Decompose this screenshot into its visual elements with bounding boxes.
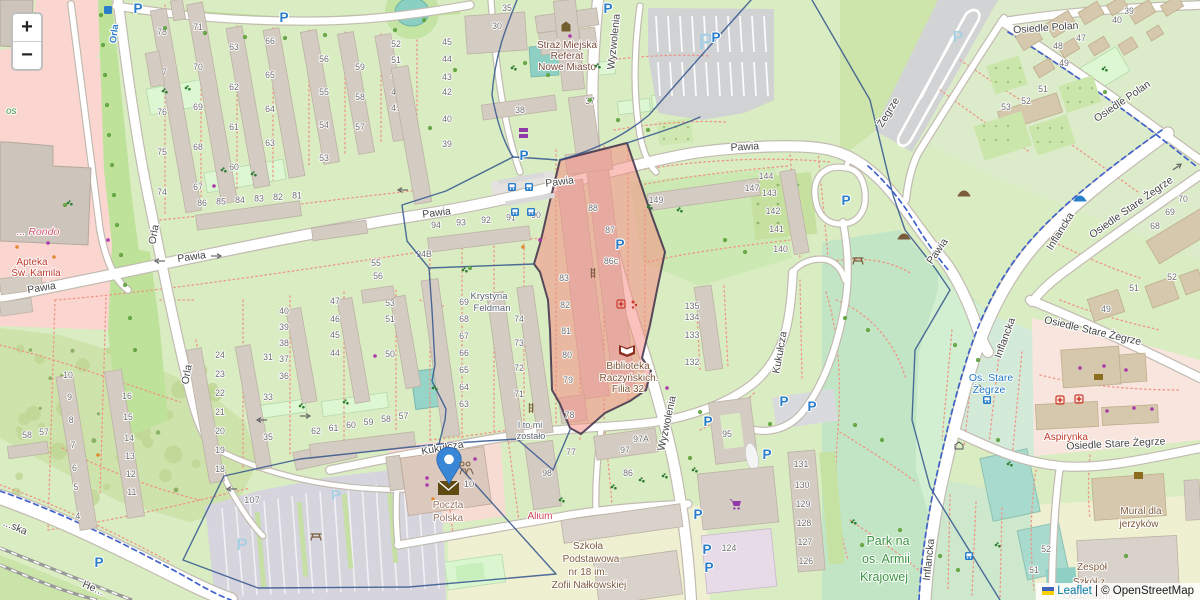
svg-text:70: 70 bbox=[1178, 194, 1188, 204]
svg-text:52: 52 bbox=[391, 39, 401, 49]
svg-text:67: 67 bbox=[193, 182, 203, 192]
svg-text:37: 37 bbox=[279, 354, 289, 364]
svg-text:39: 39 bbox=[279, 322, 289, 332]
svg-text:44: 44 bbox=[330, 348, 340, 358]
svg-text:81: 81 bbox=[561, 326, 571, 336]
svg-text:P: P bbox=[807, 399, 816, 414]
svg-text:48: 48 bbox=[1053, 41, 1063, 51]
svg-text:35: 35 bbox=[502, 3, 512, 13]
svg-text:39: 39 bbox=[442, 139, 452, 149]
svg-text:Polska: Polska bbox=[433, 513, 463, 524]
svg-text:62: 62 bbox=[229, 82, 239, 92]
svg-text:P: P bbox=[702, 542, 711, 557]
svg-text:86: 86 bbox=[197, 198, 207, 208]
svg-text:P: P bbox=[236, 535, 247, 554]
svg-text:73: 73 bbox=[514, 338, 524, 348]
svg-text:os: os bbox=[6, 106, 17, 117]
svg-text:58: 58 bbox=[22, 430, 32, 440]
svg-text:50: 50 bbox=[385, 349, 395, 359]
svg-text:56: 56 bbox=[319, 54, 329, 64]
svg-text:97: 97 bbox=[620, 445, 630, 455]
svg-text:46: 46 bbox=[330, 314, 340, 324]
svg-text:94: 94 bbox=[431, 220, 441, 230]
svg-text:Zofii Nałkowskiej: Zofii Nałkowskiej bbox=[552, 580, 626, 591]
svg-text:42: 42 bbox=[442, 87, 452, 97]
svg-text:Park na: Park na bbox=[866, 534, 909, 548]
svg-text:P: P bbox=[711, 30, 720, 45]
svg-text:20: 20 bbox=[215, 426, 225, 436]
svg-text:64: 64 bbox=[459, 382, 469, 392]
svg-text:P: P bbox=[703, 414, 712, 429]
svg-text:81: 81 bbox=[292, 191, 302, 201]
svg-text:40: 40 bbox=[279, 306, 289, 316]
svg-text:79: 79 bbox=[563, 375, 573, 385]
svg-text:31: 31 bbox=[263, 352, 273, 362]
svg-text:Pawia: Pawia bbox=[730, 140, 759, 153]
svg-text:129: 129 bbox=[796, 499, 811, 509]
svg-text:P: P bbox=[279, 10, 288, 25]
svg-text:os. Armii: os. Armii bbox=[862, 552, 910, 566]
svg-text:Apteka: Apteka bbox=[16, 257, 48, 268]
svg-text:Krajowej: Krajowej bbox=[860, 570, 908, 584]
svg-text:97A: 97A bbox=[633, 434, 649, 444]
svg-text:78: 78 bbox=[565, 410, 575, 420]
svg-text:40: 40 bbox=[442, 114, 452, 124]
svg-text:Nowe Miasto: Nowe Miasto bbox=[538, 62, 596, 73]
svg-text:Św. Kamila: Św. Kamila bbox=[11, 266, 61, 279]
svg-text:83: 83 bbox=[559, 273, 569, 283]
svg-text:44: 44 bbox=[442, 54, 452, 64]
svg-text:55: 55 bbox=[371, 258, 381, 268]
svg-text:Referat: Referat bbox=[551, 51, 584, 62]
svg-text:49: 49 bbox=[1059, 58, 1069, 68]
svg-text:P: P bbox=[704, 560, 713, 575]
svg-text:74: 74 bbox=[514, 314, 524, 324]
svg-text:35: 35 bbox=[263, 432, 273, 442]
svg-text:82: 82 bbox=[560, 300, 570, 310]
svg-text:71: 71 bbox=[193, 22, 203, 32]
svg-text:36: 36 bbox=[279, 371, 289, 381]
svg-text:Mural dla: Mural dla bbox=[1120, 506, 1162, 517]
svg-text:128: 128 bbox=[797, 518, 812, 528]
svg-text:64: 64 bbox=[265, 104, 275, 114]
svg-text:132: 132 bbox=[685, 357, 700, 367]
svg-text:18: 18 bbox=[215, 464, 225, 474]
svg-text:134: 134 bbox=[685, 312, 700, 322]
svg-text:33: 33 bbox=[263, 392, 273, 402]
svg-text:Os. Stare: Os. Stare bbox=[969, 372, 1014, 384]
svg-text:80: 80 bbox=[562, 350, 572, 360]
svg-text:52: 52 bbox=[1041, 544, 1051, 554]
svg-text:P: P bbox=[519, 148, 528, 163]
svg-text:66: 66 bbox=[265, 36, 275, 46]
svg-text:8: 8 bbox=[69, 415, 74, 425]
svg-text:39: 39 bbox=[1124, 6, 1134, 16]
svg-text:53: 53 bbox=[319, 153, 329, 163]
svg-text:19: 19 bbox=[215, 445, 225, 455]
svg-text:9: 9 bbox=[67, 392, 72, 402]
svg-text:70: 70 bbox=[193, 62, 203, 72]
svg-text:Filia 32: Filia 32 bbox=[612, 384, 645, 395]
svg-text:5: 5 bbox=[73, 482, 78, 492]
svg-text:55: 55 bbox=[319, 87, 329, 97]
svg-text:P: P bbox=[693, 507, 702, 522]
svg-text:... Rondo: ... Rondo bbox=[17, 226, 60, 238]
svg-text:Zespół: Zespół bbox=[1077, 562, 1108, 573]
svg-text:P: P bbox=[841, 193, 850, 208]
svg-text:Feldman: Feldman bbox=[474, 303, 511, 314]
svg-text:58: 58 bbox=[355, 92, 365, 102]
svg-text:10: 10 bbox=[464, 479, 475, 490]
svg-text:21: 21 bbox=[215, 407, 225, 417]
svg-text:141: 141 bbox=[769, 224, 784, 234]
svg-text:69: 69 bbox=[193, 102, 203, 112]
svg-text:130: 130 bbox=[795, 480, 810, 490]
svg-text:Poczta: Poczta bbox=[433, 500, 464, 511]
svg-text:93: 93 bbox=[456, 218, 466, 228]
svg-text:51: 51 bbox=[391, 55, 401, 65]
svg-text:11: 11 bbox=[127, 487, 136, 497]
svg-text:53: 53 bbox=[1001, 102, 1011, 112]
svg-text:zostało: zostało bbox=[517, 431, 546, 441]
svg-text:45: 45 bbox=[330, 330, 340, 340]
svg-text:56: 56 bbox=[373, 271, 383, 281]
svg-text:85: 85 bbox=[216, 197, 226, 207]
svg-text:74: 74 bbox=[157, 187, 167, 197]
svg-text:57: 57 bbox=[399, 411, 409, 421]
svg-text:77: 77 bbox=[566, 447, 576, 457]
svg-text:86: 86 bbox=[623, 468, 633, 478]
svg-text:68: 68 bbox=[1150, 221, 1160, 231]
svg-text:69: 69 bbox=[1165, 207, 1175, 217]
svg-text:52: 52 bbox=[1167, 272, 1177, 282]
svg-text:40: 40 bbox=[1112, 15, 1122, 25]
svg-text:10: 10 bbox=[63, 370, 73, 380]
svg-text:142: 142 bbox=[766, 206, 781, 216]
svg-text:54: 54 bbox=[319, 120, 329, 130]
svg-text:38: 38 bbox=[279, 338, 289, 348]
svg-text:124: 124 bbox=[722, 543, 737, 553]
svg-text:63: 63 bbox=[459, 399, 469, 409]
svg-text:58: 58 bbox=[381, 414, 391, 424]
svg-text:jerzyków: jerzyków bbox=[1119, 519, 1160, 530]
svg-text:30: 30 bbox=[492, 21, 502, 31]
svg-text:38: 38 bbox=[515, 105, 525, 115]
svg-text:131: 131 bbox=[794, 459, 809, 469]
svg-text:47: 47 bbox=[1076, 33, 1086, 43]
svg-text:144: 144 bbox=[759, 171, 774, 181]
svg-text:6: 6 bbox=[72, 463, 77, 473]
svg-text:67: 67 bbox=[459, 331, 469, 341]
svg-text:61: 61 bbox=[229, 122, 239, 132]
svg-text:43: 43 bbox=[442, 72, 452, 82]
svg-text:68: 68 bbox=[459, 314, 469, 324]
svg-text:133: 133 bbox=[685, 330, 700, 340]
svg-text:13: 13 bbox=[125, 451, 135, 461]
svg-text:59: 59 bbox=[355, 62, 365, 72]
svg-text:82: 82 bbox=[273, 192, 283, 202]
svg-text:147: 147 bbox=[745, 183, 760, 193]
svg-text:52: 52 bbox=[1021, 96, 1031, 106]
svg-text:68: 68 bbox=[193, 142, 203, 152]
svg-text:59: 59 bbox=[364, 417, 374, 427]
svg-text:P: P bbox=[94, 555, 103, 570]
svg-text:65: 65 bbox=[459, 365, 469, 375]
svg-text:Biblioteka: Biblioteka bbox=[606, 361, 650, 372]
svg-text:P: P bbox=[953, 29, 964, 46]
svg-text:51: 51 bbox=[385, 314, 395, 324]
svg-text:88: 88 bbox=[588, 203, 598, 213]
svg-text:7: 7 bbox=[70, 440, 75, 450]
svg-text:127: 127 bbox=[798, 537, 813, 547]
svg-text:47: 47 bbox=[330, 296, 340, 306]
svg-text:65: 65 bbox=[265, 70, 275, 80]
svg-text:22: 22 bbox=[215, 388, 225, 398]
svg-text:45: 45 bbox=[442, 37, 452, 47]
svg-text:P: P bbox=[133, 1, 142, 16]
svg-text:94B: 94B bbox=[416, 249, 432, 259]
svg-text:61: 61 bbox=[329, 423, 339, 433]
svg-text:Krystyna: Krystyna bbox=[471, 291, 509, 302]
svg-text:15: 15 bbox=[123, 412, 133, 422]
svg-text:140: 140 bbox=[773, 244, 788, 254]
svg-text:Straż Miejska: Straż Miejska bbox=[537, 40, 597, 51]
svg-text:57: 57 bbox=[39, 427, 49, 437]
svg-text:I to mi: I to mi bbox=[518, 420, 543, 430]
svg-text:83: 83 bbox=[254, 194, 264, 204]
svg-text:69: 69 bbox=[459, 297, 469, 307]
svg-text:62: 62 bbox=[311, 426, 321, 436]
svg-text:95: 95 bbox=[722, 429, 732, 439]
svg-text:Podstawowa: Podstawowa bbox=[563, 554, 620, 565]
svg-text:72: 72 bbox=[514, 363, 524, 373]
svg-text:Raczyńskich.: Raczyńskich. bbox=[600, 373, 659, 384]
svg-text:P: P bbox=[779, 394, 788, 409]
svg-text:84: 84 bbox=[235, 195, 245, 205]
svg-text:Szkoła: Szkoła bbox=[573, 541, 603, 552]
svg-text:16: 16 bbox=[122, 391, 132, 401]
svg-text:57: 57 bbox=[355, 122, 365, 132]
svg-text:51: 51 bbox=[1129, 283, 1139, 293]
svg-text:75: 75 bbox=[157, 147, 167, 157]
svg-text:66: 66 bbox=[459, 348, 469, 358]
svg-text:P: P bbox=[615, 237, 624, 252]
svg-text:149: 149 bbox=[649, 195, 664, 205]
svg-text:Żegrze: Żegrze bbox=[973, 383, 1006, 396]
svg-text:Aspirynka: Aspirynka bbox=[1044, 432, 1088, 443]
svg-text:49: 49 bbox=[1101, 304, 1111, 314]
svg-text:143: 143 bbox=[762, 188, 777, 198]
svg-text:Alium: Alium bbox=[527, 511, 552, 522]
svg-text:60: 60 bbox=[229, 162, 239, 172]
svg-text:nr 18 im.: nr 18 im. bbox=[569, 567, 608, 578]
svg-text:24: 24 bbox=[215, 350, 225, 360]
svg-text:98: 98 bbox=[542, 468, 552, 478]
svg-text:14: 14 bbox=[124, 433, 134, 443]
svg-text:12: 12 bbox=[126, 469, 136, 479]
svg-text:76: 76 bbox=[157, 107, 167, 117]
svg-text:P: P bbox=[762, 447, 771, 462]
svg-text:71: 71 bbox=[514, 389, 524, 399]
svg-text:135: 135 bbox=[685, 301, 700, 311]
svg-text:86c: 86c bbox=[604, 256, 619, 266]
svg-text:63: 63 bbox=[265, 138, 275, 148]
svg-text:60: 60 bbox=[346, 420, 356, 430]
svg-text:51: 51 bbox=[1038, 84, 1048, 94]
svg-text:23: 23 bbox=[215, 369, 225, 379]
svg-text:87: 87 bbox=[605, 225, 615, 235]
svg-text:4: 4 bbox=[75, 511, 80, 521]
svg-text:107: 107 bbox=[244, 495, 260, 506]
svg-text:63: 63 bbox=[229, 42, 239, 52]
svg-text:51: 51 bbox=[1029, 565, 1039, 575]
svg-text:92: 92 bbox=[481, 215, 491, 225]
svg-text:126: 126 bbox=[799, 556, 814, 566]
svg-text:P: P bbox=[331, 487, 341, 504]
